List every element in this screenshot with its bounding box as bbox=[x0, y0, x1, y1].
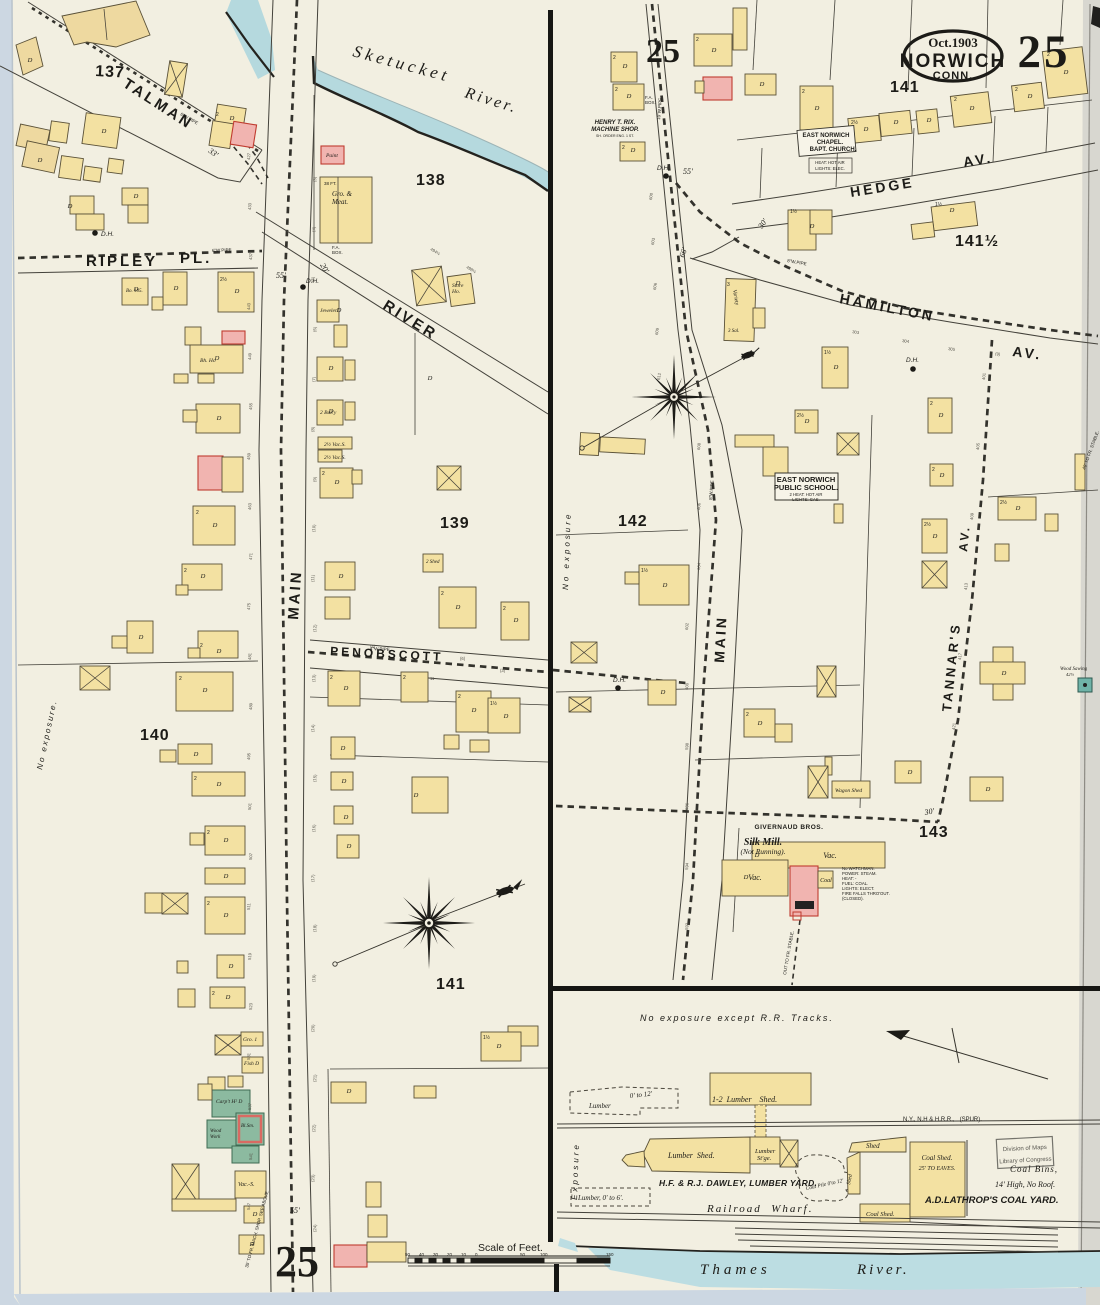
svg-text:MAIN: MAIN bbox=[711, 615, 729, 664]
svg-text:D: D bbox=[626, 93, 632, 100]
svg-text:594: 594 bbox=[684, 862, 690, 870]
svg-text:(11): (11) bbox=[310, 574, 315, 582]
svg-text:BOX.: BOX. bbox=[332, 250, 343, 255]
svg-text:437: 437 bbox=[248, 252, 253, 260]
svg-text:AV.: AV. bbox=[956, 524, 973, 552]
svg-text:2½ Vac.S.: 2½ Vac.S. bbox=[324, 441, 346, 448]
svg-text:D: D bbox=[223, 837, 229, 844]
svg-text:2½: 2½ bbox=[1000, 499, 1008, 506]
svg-text:2: 2 bbox=[184, 568, 187, 574]
svg-text:SH. ORDER ENG. 1 ST.: SH. ORDER ENG. 1 ST. bbox=[596, 134, 634, 138]
svg-text:D: D bbox=[216, 648, 222, 655]
svg-text:D.H.: D.H. bbox=[657, 165, 670, 172]
svg-text:50: 50 bbox=[405, 1252, 411, 1257]
svg-text:D: D bbox=[1027, 93, 1033, 100]
svg-text:D.H.: D.H. bbox=[906, 357, 919, 364]
svg-text:D.H.: D.H. bbox=[101, 231, 114, 238]
svg-text:Carp't H² D: Carp't H² D bbox=[216, 1099, 242, 1105]
svg-text:140: 140 bbox=[140, 727, 170, 744]
svg-text:449: 449 bbox=[247, 352, 252, 360]
svg-text:2: 2 bbox=[200, 643, 203, 649]
svg-text:St'ge.: St'ge. bbox=[757, 1155, 772, 1162]
svg-text:Oct.1903: Oct.1903 bbox=[928, 35, 978, 50]
svg-text:(3): (3) bbox=[500, 668, 506, 673]
svg-text:Wagon Shed: Wagon Shed bbox=[835, 788, 862, 794]
svg-text:D: D bbox=[455, 604, 461, 611]
svg-text:LIGHTS: GAS.: LIGHTS: GAS. bbox=[792, 497, 819, 502]
svg-text:D: D bbox=[212, 522, 218, 529]
svg-text:42½: 42½ bbox=[1066, 672, 1075, 677]
svg-text:138: 138 bbox=[416, 172, 446, 189]
svg-text:PUBLIC SCHOOL.: PUBLIC SCHOOL. bbox=[774, 483, 838, 492]
svg-text:25: 25 bbox=[646, 33, 680, 70]
svg-text:D: D bbox=[1015, 505, 1021, 512]
svg-text:142: 142 bbox=[618, 513, 648, 530]
svg-text:D: D bbox=[214, 355, 220, 362]
svg-text:Ho.: Ho. bbox=[451, 289, 460, 295]
svg-text:Lumber Shed.: Lumber Shed. bbox=[667, 1151, 714, 1160]
svg-text:Scale of Feet.: Scale of Feet. bbox=[478, 1242, 543, 1254]
svg-text:Shed: Shed bbox=[866, 1142, 880, 1150]
svg-text:141: 141 bbox=[436, 976, 466, 993]
svg-text:2: 2 bbox=[458, 694, 461, 700]
svg-text:PL.: PL. bbox=[180, 250, 212, 267]
svg-text:40: 40 bbox=[419, 1252, 425, 1257]
svg-text:D: D bbox=[759, 81, 765, 88]
svg-text:417: 417 bbox=[957, 652, 963, 660]
svg-text:D: D bbox=[37, 157, 43, 164]
svg-text:(6): (6) bbox=[460, 656, 466, 661]
svg-text:602: 602 bbox=[684, 622, 690, 630]
svg-text:606: 606 bbox=[696, 502, 702, 510]
svg-text:Vac.: Vac. bbox=[748, 873, 762, 882]
svg-text:304: 304 bbox=[902, 338, 910, 344]
svg-text:1-2 Lumber Shed.: 1-2 Lumber Shed. bbox=[712, 1095, 777, 1104]
svg-text:D: D bbox=[336, 307, 342, 314]
svg-text:495: 495 bbox=[246, 752, 251, 760]
svg-text:D: D bbox=[662, 582, 668, 589]
svg-text:1½: 1½ bbox=[490, 700, 498, 707]
svg-text:Coal Shed.: Coal Shed. bbox=[866, 1211, 895, 1218]
svg-text:1½: 1½ bbox=[641, 567, 649, 574]
svg-text:D: D bbox=[223, 873, 229, 880]
svg-text:2½: 2½ bbox=[924, 521, 932, 528]
svg-text:EAST NORWICH: EAST NORWICH bbox=[803, 133, 850, 139]
svg-text:2: 2 bbox=[196, 510, 199, 516]
svg-text:D: D bbox=[234, 288, 240, 295]
svg-text:Lumber, 0' to 6'.: Lumber, 0' to 6'. bbox=[577, 1194, 623, 1202]
svg-text:139: 139 bbox=[440, 515, 470, 532]
svg-text:596: 596 bbox=[684, 802, 690, 810]
svg-text:LIGHTS: ELEC.: LIGHTS: ELEC. bbox=[815, 166, 845, 171]
svg-text:D: D bbox=[413, 792, 419, 799]
svg-text:1½: 1½ bbox=[790, 208, 798, 215]
svg-text:Jeweler.: Jeweler. bbox=[320, 308, 338, 314]
svg-text:600: 600 bbox=[648, 192, 654, 200]
svg-text:D: D bbox=[622, 63, 628, 70]
svg-text:150: 150 bbox=[606, 1252, 614, 1257]
svg-text:2: 2 bbox=[696, 37, 699, 43]
svg-text:D: D bbox=[863, 126, 869, 133]
svg-text:(5): (5) bbox=[310, 276, 315, 282]
svg-text:D: D bbox=[804, 418, 810, 425]
svg-text:2: 2 bbox=[1047, 52, 1050, 58]
svg-text:(3): (3) bbox=[312, 176, 317, 182]
svg-text:598: 598 bbox=[684, 742, 690, 750]
svg-text:Coal Bins,: Coal Bins, bbox=[1010, 1164, 1058, 1174]
svg-text:HENRY T. RIX.: HENRY T. RIX. bbox=[595, 120, 636, 126]
svg-text:2½: 2½ bbox=[851, 119, 859, 126]
svg-text:2: 2 bbox=[613, 55, 616, 61]
svg-text:2: 2 bbox=[954, 97, 957, 103]
svg-text:608: 608 bbox=[696, 442, 702, 450]
svg-text:D: D bbox=[427, 375, 433, 382]
svg-text:413: 413 bbox=[963, 582, 969, 590]
svg-text:D: D bbox=[328, 365, 334, 372]
svg-text:Lumber: Lumber bbox=[754, 1148, 776, 1155]
svg-text:D: D bbox=[907, 769, 913, 776]
svg-text:2: 2 bbox=[930, 401, 933, 407]
svg-text:463: 463 bbox=[247, 502, 252, 510]
svg-text:D: D bbox=[471, 707, 477, 714]
svg-text:(4): (4) bbox=[311, 226, 316, 232]
svg-text:421: 421 bbox=[951, 722, 957, 730]
svg-text:2: 2 bbox=[932, 467, 935, 473]
svg-text:2½: 2½ bbox=[797, 412, 805, 419]
svg-text:(16): (16) bbox=[311, 824, 316, 832]
svg-text:2: 2 bbox=[622, 145, 625, 151]
svg-text:401: 401 bbox=[981, 372, 987, 380]
svg-text:30: 30 bbox=[433, 1252, 439, 1257]
svg-text:D: D bbox=[343, 814, 349, 821]
svg-text:10: 10 bbox=[461, 1252, 467, 1257]
svg-text:D: D bbox=[346, 843, 352, 850]
svg-text:(7): (7) bbox=[311, 376, 316, 382]
svg-text:D: D bbox=[343, 685, 349, 692]
svg-text:Coal Shed.: Coal Shed. bbox=[922, 1154, 953, 1162]
svg-text:(23): (23) bbox=[310, 1174, 315, 1182]
svg-text:H.F. & R.J. DAWLEY, LUMBER YAR: H.F. & R.J. DAWLEY, LUMBER YARD. bbox=[659, 1178, 817, 1188]
svg-text:(21): (21) bbox=[312, 1074, 317, 1082]
svg-text:(8): (8) bbox=[310, 426, 315, 432]
svg-text:541: 541 bbox=[248, 1152, 253, 1160]
svg-text:475: 475 bbox=[246, 602, 251, 610]
svg-text:305: 305 bbox=[948, 346, 956, 352]
svg-text:Bh. Ho: Bh. Ho bbox=[200, 358, 216, 364]
svg-text:D: D bbox=[334, 479, 340, 486]
svg-text:55': 55' bbox=[290, 1206, 300, 1215]
svg-text:(20): (20) bbox=[310, 1024, 315, 1032]
svg-text:55': 55' bbox=[276, 271, 286, 280]
svg-text:Work: Work bbox=[210, 1135, 221, 1140]
svg-text:D: D bbox=[949, 207, 955, 214]
svg-text:D: D bbox=[229, 115, 235, 122]
svg-text:D: D bbox=[346, 1088, 352, 1095]
svg-text:100: 100 bbox=[540, 1252, 548, 1257]
svg-text:(15): (15) bbox=[312, 774, 317, 782]
svg-text:(17): (17) bbox=[310, 874, 315, 882]
svg-text:Bl.Sm.: Bl.Sm. bbox=[241, 1124, 254, 1129]
svg-text:25: 25 bbox=[1018, 26, 1071, 78]
svg-text:D: D bbox=[1001, 670, 1007, 677]
svg-text:1½: 1½ bbox=[483, 1034, 491, 1041]
svg-text:2: 2 bbox=[179, 676, 182, 682]
svg-text:592: 592 bbox=[684, 922, 690, 930]
svg-text:Railroad Wharf.: Railroad Wharf. bbox=[706, 1203, 813, 1215]
svg-text:3 Sal.: 3 Sal. bbox=[728, 329, 739, 334]
svg-text:D: D bbox=[193, 751, 199, 758]
svg-text:14' High, No Roof.: 14' High, No Roof. bbox=[995, 1180, 1055, 1189]
svg-text:D: D bbox=[328, 408, 334, 415]
svg-text:2: 2 bbox=[1015, 87, 1018, 93]
svg-text:D: D bbox=[926, 117, 932, 124]
svg-text:D: D bbox=[754, 852, 760, 859]
svg-text:Thames: Thames bbox=[700, 1262, 771, 1278]
svg-text:427: 427 bbox=[246, 152, 251, 160]
svg-text:(6): (6) bbox=[312, 326, 317, 332]
svg-text:D: D bbox=[496, 1043, 502, 1050]
svg-text:2: 2 bbox=[503, 606, 506, 612]
svg-text:2½: 2½ bbox=[220, 276, 228, 283]
svg-text:455: 455 bbox=[248, 402, 253, 410]
svg-text:D: D bbox=[757, 720, 763, 727]
svg-text:409: 409 bbox=[969, 512, 975, 520]
svg-text:141½: 141½ bbox=[955, 233, 999, 250]
svg-text:2: 2 bbox=[207, 830, 210, 836]
svg-text:D: D bbox=[228, 963, 234, 970]
svg-text:D: D bbox=[630, 147, 636, 154]
svg-text:(19): (19) bbox=[311, 974, 316, 982]
svg-text:D: D bbox=[216, 781, 222, 788]
svg-text:D: D bbox=[938, 412, 944, 419]
svg-text:2: 2 bbox=[441, 591, 444, 597]
svg-text:2: 2 bbox=[746, 712, 749, 718]
svg-text:(CLOSED).: (CLOSED). bbox=[842, 896, 864, 901]
svg-text:1½: 1½ bbox=[824, 349, 832, 356]
svg-text:D: D bbox=[1063, 69, 1069, 76]
svg-text:609: 609 bbox=[654, 327, 660, 335]
svg-text:471: 471 bbox=[248, 552, 253, 560]
svg-text:Gro. 1: Gro. 1 bbox=[243, 1037, 257, 1043]
svg-text:3: 3 bbox=[727, 282, 730, 288]
svg-text:D: D bbox=[101, 128, 107, 135]
svg-text:CHAPEL.: CHAPEL. bbox=[817, 140, 844, 146]
svg-text:459: 459 bbox=[246, 452, 251, 460]
svg-text:D: D bbox=[338, 573, 344, 580]
svg-text:D: D bbox=[27, 57, 33, 64]
svg-text:481: 481 bbox=[247, 652, 252, 660]
svg-text:612: 612 bbox=[656, 372, 662, 380]
svg-text:MAIN: MAIN bbox=[285, 569, 305, 620]
svg-text:D: D bbox=[711, 47, 717, 54]
svg-text:N.Y., N.H & H.R.R., (SPUR).: N.Y., N.H & H.R.R., (SPUR). bbox=[903, 1117, 982, 1123]
svg-text:(9): (9) bbox=[312, 476, 317, 482]
svg-text:547: 547 bbox=[246, 1202, 251, 1210]
svg-text:D: D bbox=[893, 119, 899, 126]
svg-text:2: 2 bbox=[194, 776, 197, 782]
svg-text:GIVERNAUD BROS.: GIVERNAUD BROS. bbox=[755, 824, 824, 831]
svg-text:2: 2 bbox=[207, 901, 210, 907]
svg-text:Fish D: Fish D bbox=[243, 1061, 259, 1067]
svg-text:25' TO EAVES.: 25' TO EAVES. bbox=[919, 1166, 956, 1172]
svg-text:D: D bbox=[969, 105, 975, 112]
svg-text:D: D bbox=[814, 105, 820, 112]
svg-text:Vac.-S.: Vac.-S. bbox=[238, 1182, 255, 1188]
svg-text:2: 2 bbox=[216, 112, 219, 118]
svg-text:BAPT. CHURCH.: BAPT. CHURCH. bbox=[810, 147, 857, 153]
svg-text:603: 603 bbox=[650, 237, 656, 245]
svg-text:137: 137 bbox=[95, 63, 126, 82]
svg-text:Gro. &: Gro. & bbox=[332, 190, 353, 198]
svg-text:D: D bbox=[985, 786, 991, 793]
svg-text:Lumber: Lumber bbox=[588, 1102, 611, 1110]
svg-text:D: D bbox=[252, 1211, 258, 1218]
svg-text:CONN.: CONN. bbox=[933, 70, 973, 82]
svg-text:(13): (13) bbox=[311, 674, 316, 682]
svg-text:D: D bbox=[67, 203, 73, 210]
svg-text:(Not Running).: (Not Running). bbox=[741, 847, 786, 856]
svg-text:2: 2 bbox=[802, 89, 805, 95]
svg-text:HEAT: HOT AIR: HEAT: HOT AIR bbox=[815, 160, 844, 165]
svg-text:(22): (22) bbox=[311, 1124, 316, 1132]
svg-text:(18): (18) bbox=[312, 924, 317, 932]
svg-text:D: D bbox=[133, 193, 139, 200]
svg-text:D: D bbox=[939, 472, 945, 479]
svg-text:405: 405 bbox=[975, 442, 981, 450]
svg-text:RIPLEY: RIPLEY bbox=[86, 253, 158, 270]
svg-text:D: D bbox=[743, 874, 749, 881]
svg-text:604: 604 bbox=[696, 562, 702, 570]
svg-text:D: D bbox=[809, 223, 815, 230]
svg-text:6"W.PIPE: 6"W.PIPE bbox=[212, 247, 232, 253]
svg-text:Meat.: Meat. bbox=[331, 198, 348, 206]
svg-text:55': 55' bbox=[683, 167, 693, 176]
svg-text:D: D bbox=[138, 634, 144, 641]
svg-text:1½: 1½ bbox=[935, 201, 943, 208]
svg-text:519: 519 bbox=[247, 952, 252, 960]
svg-text:2½ Vac.S.: 2½ Vac.S. bbox=[324, 454, 346, 461]
svg-text:D: D bbox=[223, 912, 229, 919]
svg-text:(24): (24) bbox=[312, 1224, 317, 1232]
svg-text:A.D.LATHROP'S COAL YARD.: A.D.LATHROP'S COAL YARD. bbox=[924, 1195, 1059, 1206]
svg-text:(12): (12) bbox=[312, 624, 317, 632]
svg-text:NORWICH: NORWICH bbox=[900, 51, 1007, 72]
svg-text:443: 443 bbox=[246, 302, 251, 310]
svg-text:143: 143 bbox=[919, 824, 949, 841]
svg-text:2: 2 bbox=[615, 87, 618, 93]
svg-text:38 FT.: 38 FT. bbox=[324, 181, 337, 186]
svg-text:D: D bbox=[455, 280, 461, 287]
svg-text:Paint: Paint bbox=[325, 153, 338, 159]
svg-text:D: D bbox=[932, 533, 938, 540]
svg-text:D: D bbox=[200, 573, 206, 580]
svg-text:D: D bbox=[216, 415, 222, 422]
svg-text:501: 501 bbox=[247, 802, 252, 810]
svg-text:(10): (10) bbox=[311, 524, 316, 532]
svg-text:2: 2 bbox=[322, 471, 325, 477]
svg-text:Vac.: Vac. bbox=[823, 851, 837, 860]
svg-text:D: D bbox=[503, 713, 509, 720]
svg-text:(14): (14) bbox=[310, 724, 315, 732]
svg-text:No exposure except R.R. Tracks: No exposure except R.R. Tracks. bbox=[640, 1013, 834, 1023]
svg-text:D: D bbox=[173, 285, 179, 292]
svg-text:D: D bbox=[133, 286, 139, 293]
svg-text:489: 489 bbox=[248, 702, 253, 710]
svg-text:D: D bbox=[341, 778, 347, 785]
svg-text:2 Shed: 2 Shed bbox=[426, 560, 440, 565]
svg-text:Coal: Coal bbox=[820, 878, 832, 884]
svg-text:(4): (4) bbox=[370, 644, 376, 649]
svg-text:20: 20 bbox=[447, 1252, 453, 1257]
svg-text:BOX.: BOX. bbox=[645, 100, 656, 105]
svg-text:2: 2 bbox=[330, 675, 333, 681]
svg-text:25: 25 bbox=[275, 1237, 319, 1286]
svg-text:531: 531 bbox=[246, 1052, 251, 1060]
svg-text:D: D bbox=[249, 1241, 255, 1248]
svg-text:River.: River. bbox=[856, 1262, 910, 1278]
svg-text:2: 2 bbox=[403, 675, 406, 681]
svg-text:D: D bbox=[833, 364, 839, 371]
svg-text:D.H.: D.H. bbox=[613, 677, 626, 684]
svg-text:50: 50 bbox=[520, 1252, 526, 1257]
svg-text:606: 606 bbox=[652, 282, 658, 290]
svg-text:D: D bbox=[202, 687, 208, 694]
svg-text:D: D bbox=[340, 745, 346, 752]
svg-text:D: D bbox=[513, 617, 519, 624]
svg-text:141: 141 bbox=[890, 79, 920, 96]
svg-text:600: 600 bbox=[684, 682, 690, 690]
svg-text:D: D bbox=[225, 994, 231, 1001]
svg-text:11: 11 bbox=[430, 676, 435, 681]
svg-text:Wood: Wood bbox=[210, 1129, 222, 1134]
svg-text:511: 511 bbox=[246, 902, 251, 910]
svg-text:30': 30' bbox=[923, 806, 935, 817]
svg-text:507: 507 bbox=[248, 852, 253, 860]
svg-text:523: 523 bbox=[248, 1002, 253, 1010]
svg-text:D: D bbox=[660, 689, 666, 696]
svg-text:537: 537 bbox=[247, 1102, 252, 1110]
svg-text:2: 2 bbox=[212, 991, 215, 997]
svg-text:MACHINE SHOP.: MACHINE SHOP. bbox=[591, 127, 639, 133]
svg-text:433: 433 bbox=[247, 202, 252, 210]
